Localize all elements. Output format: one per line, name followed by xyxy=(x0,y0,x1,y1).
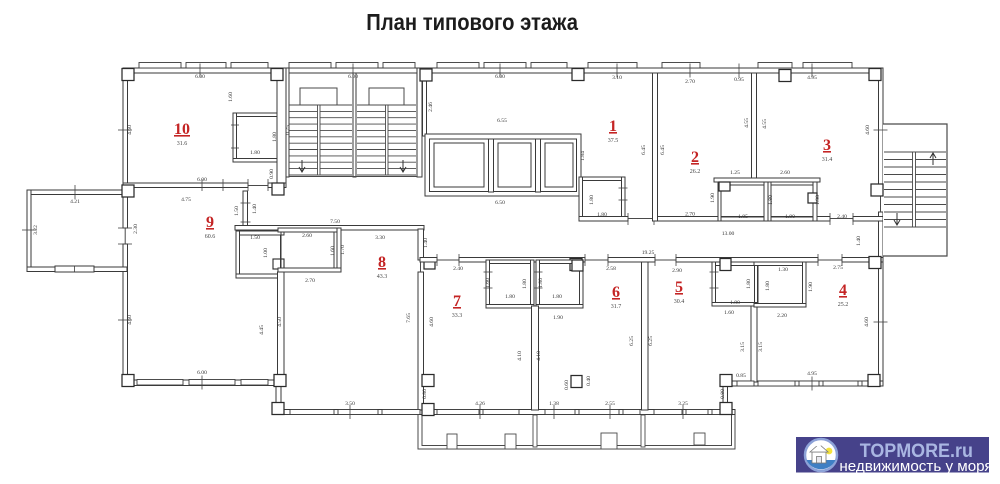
svg-text:2.55: 2.55 xyxy=(605,401,615,407)
svg-text:1.60: 1.60 xyxy=(228,92,234,102)
svg-text:6.00: 6.00 xyxy=(348,74,358,80)
svg-text:недвижимость у моря: недвижимость у моря xyxy=(839,458,992,475)
svg-text:3.50: 3.50 xyxy=(345,401,355,407)
svg-text:1.80: 1.80 xyxy=(522,279,528,289)
svg-text:37.5: 37.5 xyxy=(608,138,619,144)
svg-text:4.55: 4.55 xyxy=(762,119,768,129)
svg-text:2.70: 2.70 xyxy=(685,212,695,218)
svg-text:1: 1 xyxy=(609,118,617,135)
svg-text:2.70: 2.70 xyxy=(685,79,695,85)
svg-text:6.00: 6.00 xyxy=(197,370,207,376)
svg-text:7: 7 xyxy=(453,293,461,310)
svg-text:2.90: 2.90 xyxy=(672,268,682,274)
svg-text:1.80: 1.80 xyxy=(250,150,260,156)
svg-text:25.2: 25.2 xyxy=(838,302,849,308)
svg-text:2: 2 xyxy=(691,149,699,166)
svg-text:2.75: 2.75 xyxy=(833,265,843,271)
svg-text:2.58: 2.58 xyxy=(606,266,616,272)
svg-text:2.60: 2.60 xyxy=(302,233,312,239)
svg-text:4: 4 xyxy=(839,282,847,299)
svg-text:1.80: 1.80 xyxy=(589,195,595,205)
svg-text:1.85: 1.85 xyxy=(738,214,748,220)
svg-text:6.50: 6.50 xyxy=(495,200,505,206)
svg-text:2.70: 2.70 xyxy=(305,278,315,284)
svg-text:19.25: 19.25 xyxy=(642,250,655,256)
svg-text:1.90: 1.90 xyxy=(815,195,821,205)
svg-text:1.50: 1.50 xyxy=(250,235,260,241)
svg-text:1.80: 1.80 xyxy=(765,281,771,291)
svg-text:4.60: 4.60 xyxy=(865,125,871,135)
svg-text:0.95: 0.95 xyxy=(734,77,744,83)
svg-text:6.25: 6.25 xyxy=(629,336,635,346)
svg-text:4.10: 4.10 xyxy=(517,351,523,361)
svg-text:1.60: 1.60 xyxy=(485,278,491,288)
svg-text:1.80: 1.80 xyxy=(505,294,515,300)
svg-text:0.80: 0.80 xyxy=(422,389,428,399)
svg-text:3.30: 3.30 xyxy=(375,235,385,241)
svg-text:31.7: 31.7 xyxy=(611,304,622,310)
svg-text:1.80: 1.80 xyxy=(746,279,752,289)
svg-text:9: 9 xyxy=(206,214,214,231)
svg-text:0.25: 0.25 xyxy=(285,125,291,135)
svg-text:1.80: 1.80 xyxy=(785,214,795,220)
svg-text:0.85: 0.85 xyxy=(736,373,746,379)
svg-text:4.50: 4.50 xyxy=(277,317,283,327)
svg-text:1.50: 1.50 xyxy=(234,206,240,216)
svg-text:1.40: 1.40 xyxy=(252,204,258,214)
svg-text:4.55: 4.55 xyxy=(744,118,750,128)
svg-text:2.40: 2.40 xyxy=(837,214,847,220)
svg-text:1.70: 1.70 xyxy=(340,245,346,255)
svg-text:4.45: 4.45 xyxy=(259,325,265,335)
svg-text:4.10: 4.10 xyxy=(536,351,542,361)
svg-text:6.45: 6.45 xyxy=(641,145,647,155)
svg-text:5: 5 xyxy=(675,279,683,296)
svg-text:1.60: 1.60 xyxy=(724,310,734,316)
svg-text:10: 10 xyxy=(174,121,190,138)
svg-text:2.46: 2.46 xyxy=(428,102,434,112)
svg-text:2.30: 2.30 xyxy=(133,224,139,234)
svg-text:1.38: 1.38 xyxy=(549,401,559,407)
svg-text:6.00: 6.00 xyxy=(495,74,505,80)
svg-text:1.60: 1.60 xyxy=(330,246,336,256)
svg-text:1.80: 1.80 xyxy=(597,212,607,218)
svg-text:1.80: 1.80 xyxy=(538,278,544,288)
svg-text:4.95: 4.95 xyxy=(807,75,817,81)
svg-text:0.90: 0.90 xyxy=(269,169,275,179)
svg-text:4.60: 4.60 xyxy=(127,125,133,135)
svg-text:6.00: 6.00 xyxy=(195,74,205,80)
svg-text:26.2: 26.2 xyxy=(690,169,701,175)
svg-text:30.4: 30.4 xyxy=(674,299,685,305)
svg-text:4.60: 4.60 xyxy=(127,315,133,325)
svg-text:0.80: 0.80 xyxy=(720,389,726,399)
svg-text:31.4: 31.4 xyxy=(822,157,833,163)
svg-text:6.55: 6.55 xyxy=(497,118,507,124)
svg-text:1.80: 1.80 xyxy=(552,294,562,300)
svg-text:31.6: 31.6 xyxy=(177,141,188,147)
svg-text:1.40: 1.40 xyxy=(423,238,429,248)
svg-text:7.50: 7.50 xyxy=(330,219,340,225)
svg-text:3.25: 3.25 xyxy=(678,401,688,407)
svg-text:6.00: 6.00 xyxy=(197,177,207,183)
svg-text:6.25: 6.25 xyxy=(648,336,654,346)
svg-text:1.00: 1.00 xyxy=(263,248,269,258)
svg-text:3.15: 3.15 xyxy=(758,342,764,352)
svg-text:План типового этажа: План типового этажа xyxy=(366,9,578,36)
svg-text:43.3: 43.3 xyxy=(377,274,388,280)
svg-text:33.3: 33.3 xyxy=(452,313,463,319)
svg-text:1.25: 1.25 xyxy=(730,170,740,176)
svg-text:1.84: 1.84 xyxy=(580,151,586,161)
svg-text:4.21: 4.21 xyxy=(70,199,80,205)
svg-text:1.80: 1.80 xyxy=(768,195,774,205)
svg-text:1.90: 1.90 xyxy=(553,315,563,321)
svg-text:13.00: 13.00 xyxy=(722,231,735,237)
svg-text:4.26: 4.26 xyxy=(475,401,485,407)
svg-text:3.15: 3.15 xyxy=(740,342,746,352)
svg-text:6: 6 xyxy=(612,284,620,301)
svg-text:0.40: 0.40 xyxy=(586,376,592,386)
svg-text:2.60: 2.60 xyxy=(780,170,790,176)
svg-text:3.10: 3.10 xyxy=(612,75,622,81)
svg-text:1.80: 1.80 xyxy=(272,132,278,142)
svg-text:1.90: 1.90 xyxy=(808,282,814,292)
svg-text:7.65: 7.65 xyxy=(406,313,412,323)
svg-text:1.80: 1.80 xyxy=(730,300,740,306)
svg-text:0.60: 0.60 xyxy=(564,380,570,390)
svg-text:1.30: 1.30 xyxy=(778,267,788,273)
svg-text:2.20: 2.20 xyxy=(777,313,787,319)
svg-text:1.90: 1.90 xyxy=(710,193,716,203)
svg-text:4.95: 4.95 xyxy=(807,371,817,377)
svg-text:3: 3 xyxy=(823,137,831,154)
svg-text:3.22: 3.22 xyxy=(33,225,39,235)
svg-text:4.75: 4.75 xyxy=(181,197,191,203)
svg-text:1.40: 1.40 xyxy=(856,236,862,246)
svg-text:4.60: 4.60 xyxy=(864,317,870,327)
svg-text:8: 8 xyxy=(378,254,386,271)
svg-text:6.45: 6.45 xyxy=(660,145,666,155)
svg-text:2.40: 2.40 xyxy=(453,266,463,272)
svg-text:60.6: 60.6 xyxy=(205,234,216,240)
svg-text:4.60: 4.60 xyxy=(429,317,435,327)
